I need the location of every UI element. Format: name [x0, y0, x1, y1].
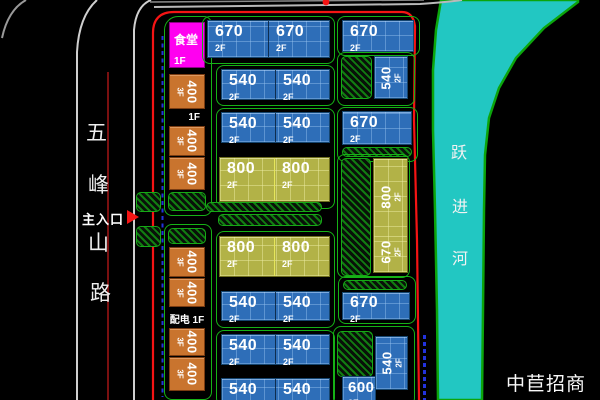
unit[interactable]: 5402F — [275, 379, 329, 400]
road-name-char: 路 — [90, 283, 111, 304]
unit-area: 540 — [283, 116, 329, 132]
unit-area: 670 — [350, 295, 409, 311]
green-hatch-strip — [218, 214, 322, 226]
unit[interactable]: 5402F — [222, 113, 275, 142]
unit[interactable]: 5402F — [222, 335, 275, 364]
unit-area: 400 — [186, 80, 199, 103]
unit-area: 600 — [348, 380, 375, 395]
unit-area: 800 — [282, 240, 329, 256]
main-entrance-label: 主入口 — [82, 209, 124, 228]
unit-floor: 3F — [176, 369, 184, 378]
river-name-char: 进 — [452, 200, 468, 216]
power-room-text: 配电 1F — [170, 311, 204, 326]
unit-floor: 2F — [395, 358, 403, 367]
unit-floor: 2F — [350, 315, 409, 324]
unit-area: 540 — [229, 73, 275, 89]
road-name-char: 山 — [88, 233, 109, 254]
unit[interactable]: 6702F — [268, 21, 329, 57]
unit-area: 540 — [229, 116, 275, 132]
unit[interactable]: 5402F — [275, 113, 329, 142]
entrance-arrow-icon — [127, 210, 139, 224]
left-unit-2[interactable]: 4003F — [169, 126, 205, 156]
building-800-pair[interactable]: 8002F 8002F — [219, 236, 330, 277]
building-540-vertical[interactable]: 5402F — [375, 336, 408, 390]
building-670[interactable]: 670 2F — [342, 111, 412, 145]
unit-area: 540 — [380, 66, 393, 89]
entrance-island-hatch — [136, 192, 161, 212]
unit-area: 800 — [227, 240, 274, 256]
unit-area: 400 — [186, 250, 199, 273]
building-540-pair[interactable]: 5402F 5402F — [221, 112, 330, 143]
watermark-text: 中苣招商网 — [506, 369, 600, 400]
unit[interactable]: 8002F — [220, 158, 274, 201]
left-unit-6[interactable]: 4003F — [169, 328, 205, 356]
left-unit-4[interactable]: 4003F — [169, 247, 205, 277]
unit-floor: 2F — [229, 358, 275, 367]
unit-area: 670 — [350, 115, 411, 131]
unit-floor: 2F — [227, 181, 274, 190]
unit-area: 400 — [186, 162, 199, 185]
unit-area: 540 — [283, 338, 329, 354]
river-name-char: 河 — [452, 252, 468, 268]
unit-floor: 3F — [176, 288, 184, 297]
unit-floor: 3F — [176, 337, 184, 346]
unit-floor: 2F — [283, 93, 329, 102]
building-800-670-vertical[interactable]: 8002F 6702F — [373, 158, 408, 273]
unit-area: 400 — [186, 129, 199, 152]
green-hatch-strip — [168, 228, 206, 244]
green-hatch-strip — [206, 202, 322, 212]
unit-area: 800 — [227, 161, 274, 177]
unit-floor: 2F — [276, 44, 329, 53]
unit-area: 540 — [380, 351, 393, 374]
building-670[interactable]: 670 2F — [342, 292, 410, 320]
unit[interactable]: 8002F — [220, 237, 274, 276]
unit-area: 540 — [229, 382, 275, 398]
building-670-pair[interactable]: 6702F 6702F — [207, 20, 330, 58]
road-name-char: 峰 — [88, 175, 109, 196]
unit-floor: 2F — [394, 193, 402, 202]
unit-floor: 2F — [350, 135, 411, 144]
unit-floor: 2F — [227, 260, 274, 269]
unit[interactable]: 8002F — [274, 158, 329, 201]
top-road-line-2 — [150, 0, 424, 2]
unit[interactable]: 5402F — [222, 70, 275, 99]
entrance-island-hatch — [136, 226, 161, 247]
green-hatch-strip — [343, 280, 407, 290]
floor-1f-bar: 1F — [168, 110, 206, 124]
road-name-char: 五 — [86, 123, 107, 144]
left-unit-7[interactable]: 4003F — [169, 357, 205, 391]
unit[interactable]: 5402F — [275, 70, 329, 99]
unit[interactable]: 6702F — [208, 21, 268, 57]
building-540-pair[interactable]: 5402F 5402F — [221, 291, 330, 321]
unit-floor: 2F — [283, 358, 329, 367]
building-540-pair[interactable]: 5402F 5402F — [221, 334, 330, 365]
floor-1f-text: 1F — [188, 112, 200, 123]
unit-floor: 2F — [283, 315, 329, 324]
unit-floor: 2F — [395, 73, 403, 82]
site-plan: 食堂 1F 4003F 1F 4003F 4003F 4003F 4003F 配… — [0, 0, 600, 400]
unit-floor: 2F — [229, 93, 275, 102]
unit-area: 540 — [283, 295, 329, 311]
unit-area: 670 — [379, 240, 392, 263]
building-600[interactable]: 600 2F — [342, 376, 376, 400]
green-hatch-strip — [168, 192, 206, 211]
unit-area: 670 — [350, 24, 413, 40]
green-hatch-block — [341, 56, 372, 99]
unit-area: 800 — [282, 161, 329, 177]
unit-area: 540 — [229, 338, 275, 354]
building-800-pair[interactable]: 8002F 8002F — [219, 157, 330, 202]
unit-floor: 2F — [283, 136, 329, 145]
power-room-bar: 配电 1F — [168, 311, 206, 326]
canteen-floor-label: 1F — [174, 56, 204, 67]
unit-area: 540 — [229, 295, 275, 311]
building-540-pair[interactable]: 5402F 5402F — [221, 378, 330, 400]
unit-floor: 3F — [176, 169, 184, 178]
river-name-char: 跃 — [451, 146, 467, 162]
unit-floor: 2F — [229, 315, 275, 324]
unit-floor: 2F — [282, 260, 329, 269]
canteen-building[interactable]: 食堂 1F — [169, 22, 205, 68]
unit-area: 540 — [283, 382, 329, 398]
unit-area: 800 — [379, 186, 392, 209]
building-540-pair[interactable]: 5402F 5402F — [221, 69, 330, 100]
left-unit-5[interactable]: 4003F — [169, 278, 205, 307]
unit-area: 670 — [276, 24, 329, 40]
road-curve-outer — [2, 0, 26, 38]
unit[interactable]: 6702F — [379, 240, 402, 263]
unit-area: 400 — [186, 362, 199, 385]
left-unit-3[interactable]: 4003F — [169, 157, 205, 190]
left-unit-1[interactable]: 4003F — [169, 74, 205, 109]
unit[interactable]: 8002F — [379, 186, 402, 209]
unit-floor: 3F — [176, 87, 184, 96]
unit-area: 400 — [186, 330, 199, 353]
unit[interactable]: 5402F — [275, 335, 329, 364]
unit-floor: 2F — [215, 44, 268, 53]
unit[interactable]: 5402F — [275, 292, 329, 320]
unit-floor: 3F — [176, 257, 184, 266]
unit-floor: 3F — [176, 136, 184, 145]
unit-floor: 2F — [282, 181, 329, 190]
unit[interactable]: 5402F — [222, 292, 275, 320]
unit-area: 540 — [283, 73, 329, 89]
unit-area: 400 — [186, 281, 199, 304]
building-540-vertical[interactable]: 5402F — [374, 56, 408, 99]
unit-floor: 2F — [394, 247, 402, 256]
green-hatch-block — [337, 331, 373, 377]
unit-area: 670 — [215, 24, 268, 40]
unit[interactable]: 8002F — [274, 237, 329, 276]
unit[interactable]: 5402F — [222, 379, 275, 400]
unit-divider — [374, 236, 407, 237]
canteen-label: 食堂 — [174, 31, 204, 48]
unit-floor: 2F — [229, 136, 275, 145]
road-lane-line-left — [77, 0, 97, 400]
green-hatch-block — [341, 158, 371, 276]
building-670[interactable]: 670 2F — [342, 20, 414, 52]
